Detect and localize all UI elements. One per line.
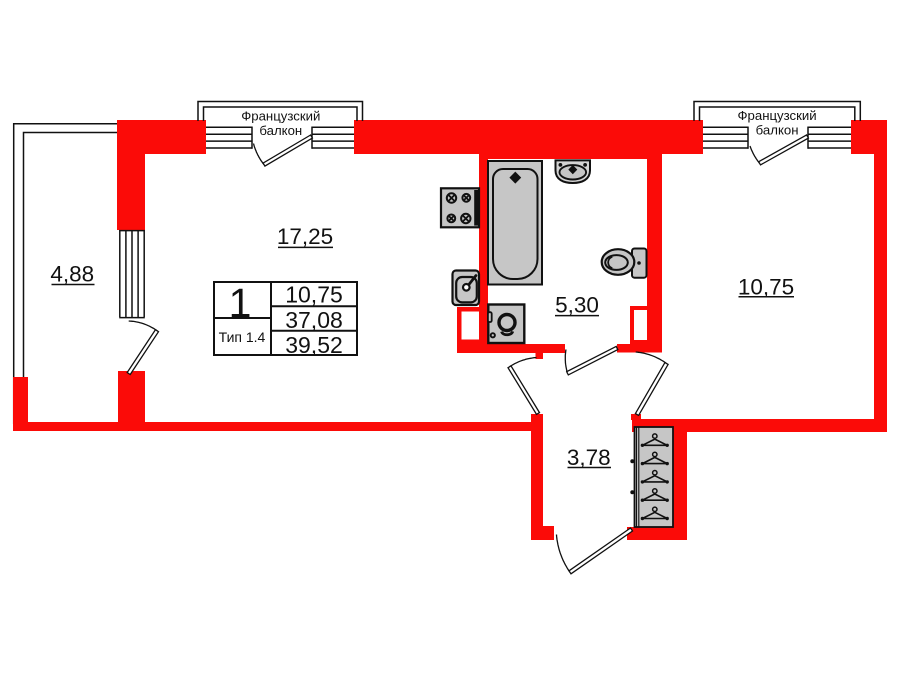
svg-text:Тип 1.4: Тип 1.4 — [219, 329, 266, 345]
svg-text:17,25: 17,25 — [277, 224, 333, 249]
svg-text:37,08: 37,08 — [285, 307, 343, 333]
svg-text:Французский: Французский — [241, 109, 320, 124]
svg-text:5,30: 5,30 — [555, 293, 599, 318]
svg-text:Французский: Французский — [738, 108, 817, 123]
svg-text:39,52: 39,52 — [285, 332, 343, 358]
svg-text:3,78: 3,78 — [567, 445, 611, 470]
svg-text:4,88: 4,88 — [50, 261, 94, 286]
svg-text:10,75: 10,75 — [738, 274, 794, 299]
svg-text:балкон: балкон — [756, 123, 799, 138]
svg-text:1: 1 — [229, 280, 252, 326]
svg-text:10,75: 10,75 — [285, 281, 343, 307]
svg-text:балкон: балкон — [259, 123, 302, 138]
